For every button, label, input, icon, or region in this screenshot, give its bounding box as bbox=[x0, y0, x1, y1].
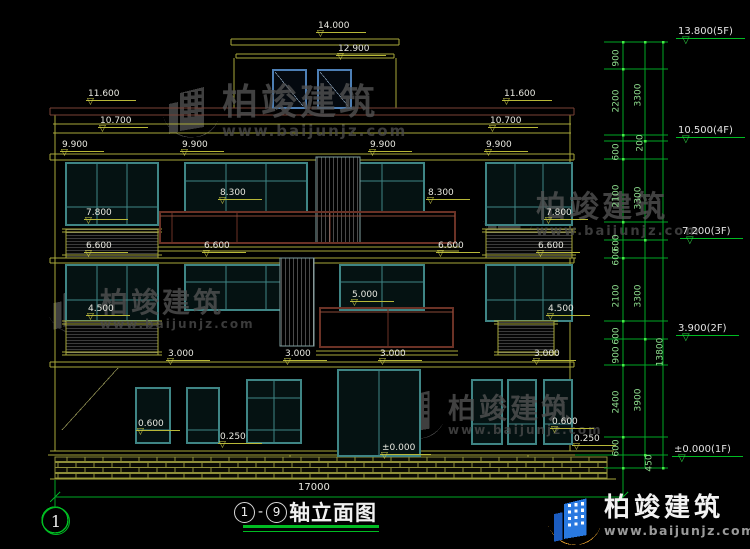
title-underline-thin bbox=[243, 531, 379, 532]
ladder-dim: 13800 bbox=[657, 338, 666, 367]
level-label: 10.700▽ bbox=[98, 117, 148, 128]
ladder-dim: 3300 bbox=[635, 285, 644, 308]
watermark: 柏竣建筑 www.baijunjz.com bbox=[448, 394, 603, 437]
overall-width-dim: 17000 bbox=[298, 482, 330, 493]
watermark: 柏竣建筑 www.baijunjz.com bbox=[222, 84, 407, 140]
ladder-dim: 900 bbox=[613, 49, 622, 66]
ladder-dim: 600 bbox=[613, 143, 622, 160]
brand-url: www.baijunjz.com bbox=[604, 523, 750, 538]
title-axis-start: 1 bbox=[234, 502, 255, 523]
ladder-dim: 600 bbox=[613, 439, 622, 456]
cad-elevation-drawing: 柏竣建筑 www.baijunjz.com 柏竣建筑 www.baijunjz.… bbox=[0, 0, 750, 549]
ladder-dim: 200 bbox=[637, 134, 646, 151]
level-label: 3.000▽ bbox=[532, 350, 576, 361]
ladder-dim: 2100 bbox=[613, 185, 622, 208]
level-label: 3.000▽ bbox=[283, 350, 327, 361]
floor-marker: 13.800(5F)▽ bbox=[676, 26, 745, 39]
ladder-dim: 2400 bbox=[613, 391, 622, 414]
level-label: 6.600▽ bbox=[436, 242, 480, 253]
axis-bubble: 1 bbox=[42, 507, 70, 535]
ladder-dim: 900 bbox=[613, 346, 622, 363]
ladder-dim: 2200 bbox=[613, 90, 622, 113]
level-label: 11.600▽ bbox=[86, 90, 136, 101]
level-label: 0.250▽ bbox=[572, 435, 616, 446]
title-dash: - bbox=[258, 504, 263, 520]
floor-marker: ±0.000(1F)▽ bbox=[672, 444, 743, 457]
level-label: 3.000▽ bbox=[378, 350, 422, 361]
level-label: 4.500▽ bbox=[546, 305, 590, 316]
level-label: 9.900▽ bbox=[368, 141, 412, 152]
level-label: 7.800▽ bbox=[84, 209, 128, 220]
ladder-dim: 3900 bbox=[635, 389, 644, 412]
ladder-dim: 600 bbox=[613, 248, 622, 265]
level-label: 0.600▽ bbox=[550, 418, 594, 429]
drawing-title: 1 - 9 轴立面图 bbox=[234, 497, 377, 527]
level-label: 6.600▽ bbox=[202, 242, 246, 253]
ramp-line bbox=[62, 368, 118, 430]
title-underline bbox=[243, 525, 379, 528]
floor-marker: 10.500(4F)▽ bbox=[676, 125, 745, 138]
brand-logo-color bbox=[548, 498, 600, 544]
level-label: 11.600▽ bbox=[502, 90, 552, 101]
level-label: 9.900▽ bbox=[60, 141, 104, 152]
ladder-dim: 450 bbox=[646, 454, 655, 471]
level-label: 9.900▽ bbox=[180, 141, 224, 152]
level-label: 8.300▽ bbox=[426, 189, 470, 200]
level-label: 4.500▽ bbox=[86, 305, 130, 316]
level-label: 14.000▽ bbox=[316, 22, 366, 33]
brick-plinth bbox=[55, 457, 607, 478]
level-label: 10.700▽ bbox=[488, 117, 538, 128]
level-label: 0.600▽ bbox=[136, 420, 180, 431]
watermark-url: www.baijunjz.com bbox=[222, 122, 407, 140]
level-label: 6.600▽ bbox=[84, 242, 128, 253]
floor-marker: 3.900(2F)▽ bbox=[676, 323, 739, 336]
title-axis-end: 9 bbox=[266, 502, 287, 523]
watermark-brand: 柏竣建筑 bbox=[222, 84, 407, 122]
brand-name: 柏竣建筑 bbox=[604, 494, 750, 523]
level-label: 6.600▽ bbox=[536, 242, 580, 253]
brand-footer: 柏竣建筑 www.baijunjz.com bbox=[604, 494, 750, 538]
level-label: 12.900▽ bbox=[336, 45, 386, 56]
level-label: 7.800▽ bbox=[544, 209, 588, 220]
level-label: 5.000▽ bbox=[350, 291, 394, 302]
ladder-dim: 3300 bbox=[635, 84, 644, 107]
level-label: 0.250▽ bbox=[218, 433, 262, 444]
level-label: 9.900▽ bbox=[484, 141, 528, 152]
level-label: ±0.000▽ bbox=[380, 444, 431, 455]
ladder-dim: 2100 bbox=[613, 285, 622, 308]
floor-marker: 7.200(3F)▽ bbox=[680, 226, 743, 239]
ladder-dim: 3300 bbox=[635, 187, 644, 210]
level-label: 3.000▽ bbox=[166, 350, 210, 361]
title-text: 轴立面图 bbox=[289, 497, 377, 527]
level-label: 8.300▽ bbox=[218, 189, 262, 200]
ladder-dim: 600 bbox=[613, 327, 622, 344]
